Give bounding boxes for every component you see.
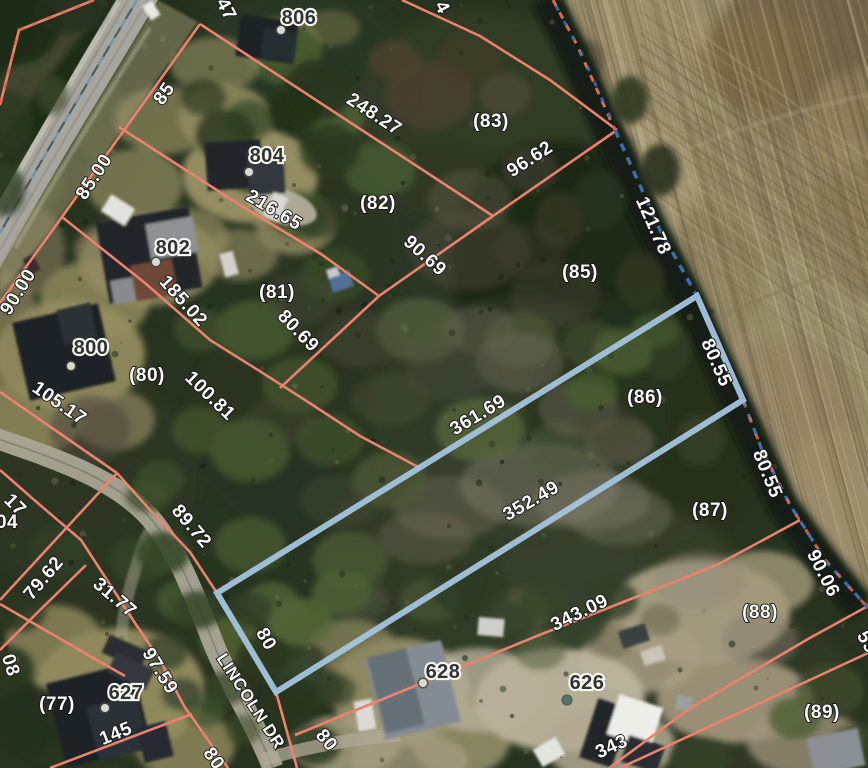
svg-text:(85): (85) (562, 262, 598, 283)
svg-text:(83): (83) (473, 111, 509, 132)
svg-text:626: 626 (570, 672, 605, 694)
svg-text:627: 627 (109, 682, 144, 704)
svg-text:(88): (88) (742, 602, 778, 623)
svg-text:804: 804 (250, 145, 285, 167)
svg-text:(86): (86) (627, 387, 663, 408)
svg-text:806: 806 (282, 7, 317, 29)
svg-text:(77): (77) (39, 694, 75, 715)
svg-text:802: 802 (156, 237, 191, 259)
svg-text:628: 628 (426, 661, 461, 683)
svg-text:(81): (81) (259, 282, 295, 303)
svg-text:800: 800 (74, 337, 109, 359)
svg-text:(82): (82) (360, 193, 396, 214)
svg-text:(87): (87) (692, 500, 728, 521)
svg-text:04: 04 (0, 512, 18, 533)
svg-text:(80): (80) (129, 365, 165, 386)
svg-text:(89): (89) (804, 702, 840, 723)
